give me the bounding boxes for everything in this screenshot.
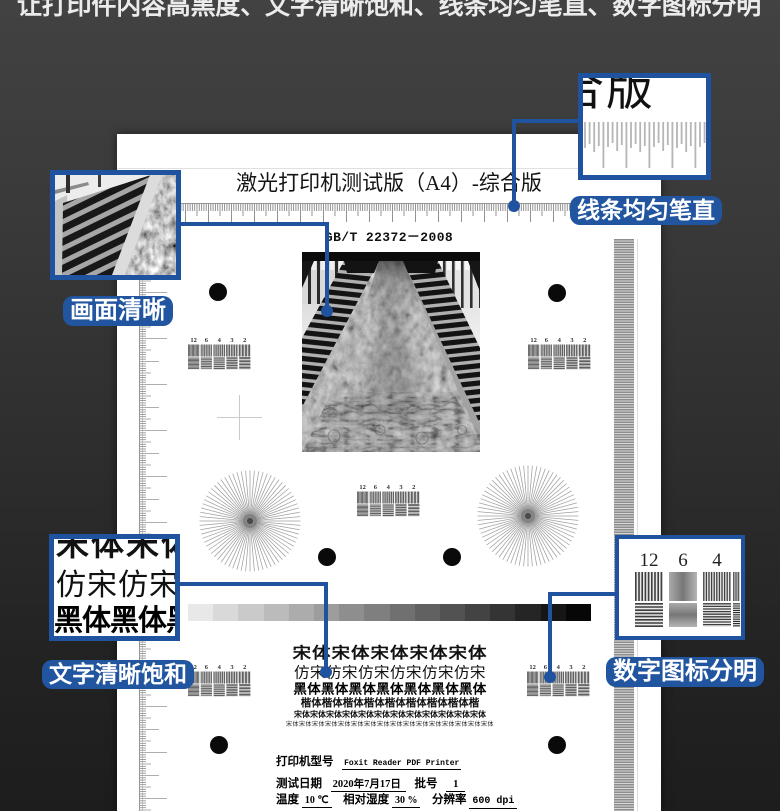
svg-text:4: 4 [712,550,722,571]
svg-text:6: 6 [205,337,209,344]
svg-text:4: 4 [218,337,222,344]
svg-text:2: 2 [412,484,415,491]
svg-text:12: 12 [190,337,197,344]
svg-text:3: 3 [230,337,234,344]
svg-text:4: 4 [558,337,562,344]
svg-text:6: 6 [374,484,378,491]
svg-text:4: 4 [387,484,391,491]
svg-text:2: 2 [583,337,586,344]
svg-text:6: 6 [545,337,549,344]
svg-text:3: 3 [570,337,574,344]
svg-text:3: 3 [399,484,403,491]
svg-text:6: 6 [678,550,688,571]
svg-text:2: 2 [243,337,246,344]
svg-text:12: 12 [359,484,366,491]
svg-text:12: 12 [530,337,537,344]
svg-text:12: 12 [640,550,659,571]
